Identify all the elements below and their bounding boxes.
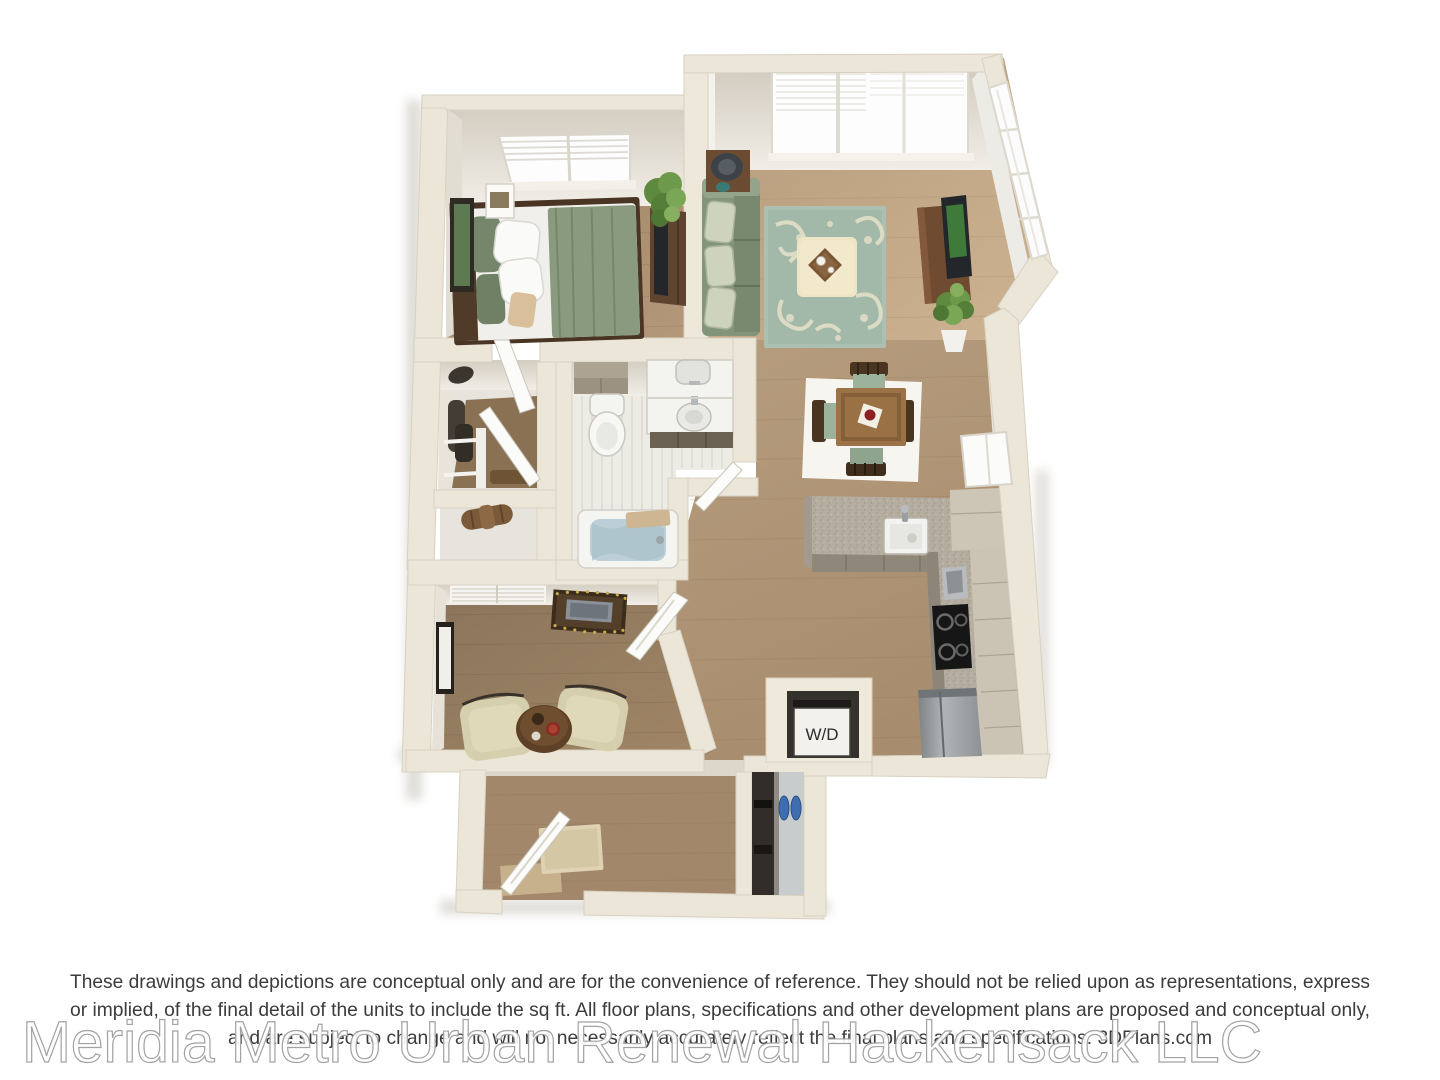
svg-text:W/D: W/D <box>805 725 838 744</box>
svg-text:Meridia Metro Urban Renewal Ha: Meridia Metro Urban Renewal Hackensack L… <box>22 1010 1262 1075</box>
svg-text:These drawings and depictions: These drawings and depictions are concep… <box>70 971 1370 993</box>
